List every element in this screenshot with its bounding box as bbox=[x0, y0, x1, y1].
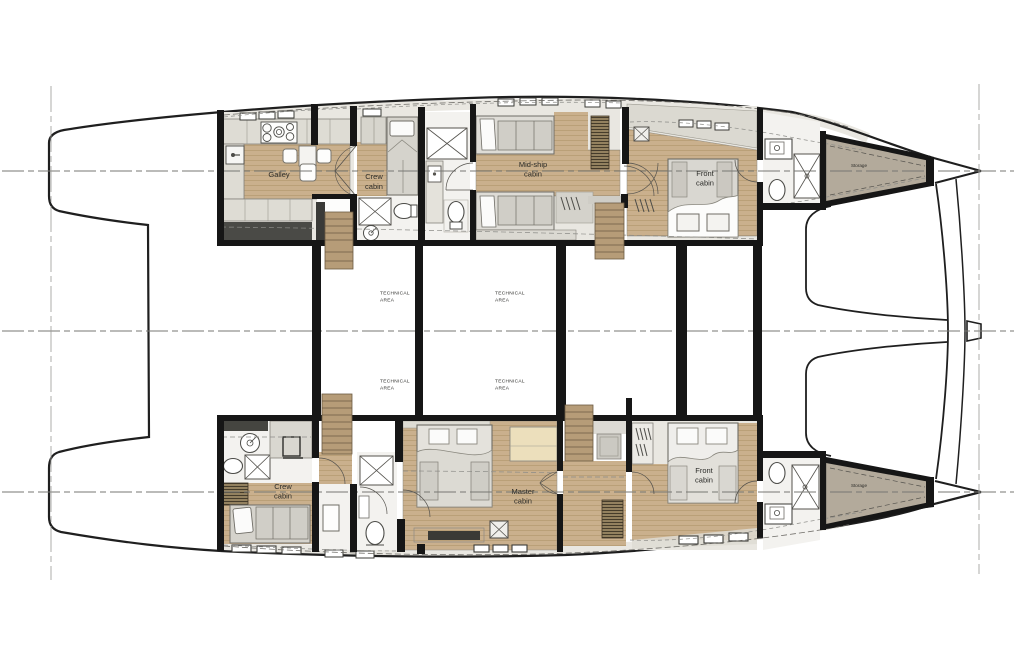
svg-text:AREA: AREA bbox=[495, 386, 510, 392]
svg-text:cabin: cabin bbox=[514, 497, 532, 506]
svg-text:Galley: Galley bbox=[268, 170, 290, 179]
svg-text:Front: Front bbox=[696, 169, 714, 178]
svg-text:TECHNICAL: TECHNICAL bbox=[495, 291, 525, 297]
svg-text:Master: Master bbox=[512, 487, 535, 496]
svg-text:Front: Front bbox=[695, 466, 713, 475]
svg-text:TECHNICAL: TECHNICAL bbox=[380, 291, 410, 297]
svg-text:Crew: Crew bbox=[274, 482, 292, 491]
svg-text:Mid-ship: Mid-ship bbox=[519, 160, 547, 169]
svg-text:cabin: cabin bbox=[274, 492, 292, 501]
svg-text:Storage: Storage bbox=[851, 483, 868, 488]
svg-text:Storage: Storage bbox=[851, 163, 868, 168]
svg-text:AREA: AREA bbox=[380, 298, 395, 304]
svg-text:cabin: cabin bbox=[524, 170, 542, 179]
svg-text:cabin: cabin bbox=[696, 179, 714, 188]
svg-text:Crew: Crew bbox=[365, 172, 383, 181]
svg-text:cabin: cabin bbox=[695, 476, 713, 485]
svg-text:AREA: AREA bbox=[495, 298, 510, 304]
svg-text:cabin: cabin bbox=[365, 182, 383, 191]
svg-text:TECHNICAL: TECHNICAL bbox=[495, 379, 525, 385]
svg-text:AREA: AREA bbox=[380, 386, 395, 392]
svg-text:TECHNICAL: TECHNICAL bbox=[380, 379, 410, 385]
